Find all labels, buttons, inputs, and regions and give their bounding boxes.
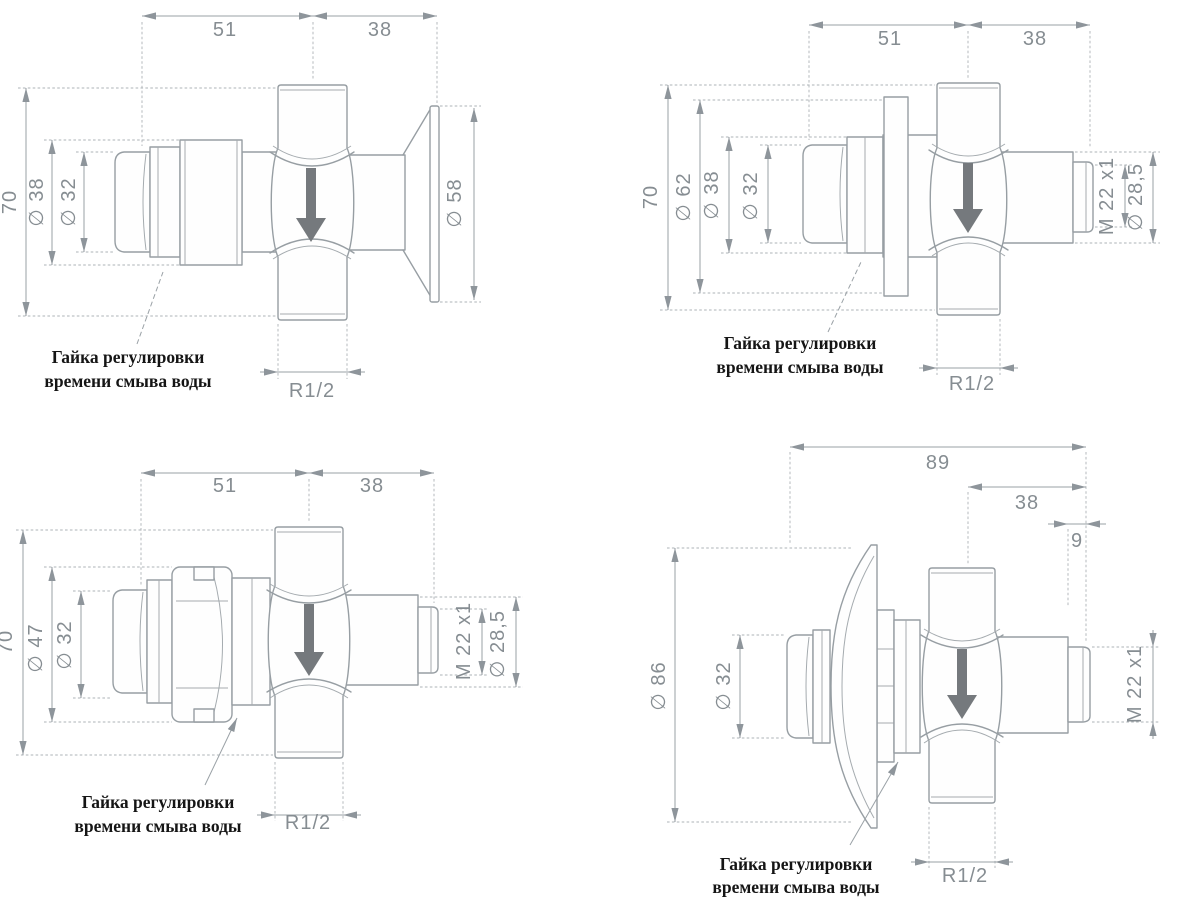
dome-escutcheon xyxy=(831,545,877,828)
threaded-outlet xyxy=(1068,647,1090,722)
thread-label-r12: R1/2 xyxy=(949,373,995,395)
technical-drawing-sheet: 51 38 70 ∅ 38 ∅ 32 ∅ 58 R1/2 Гайка регул… xyxy=(0,0,1200,910)
note-line1: Гайка регулировки xyxy=(720,854,873,874)
dim-label-9: 9 xyxy=(1071,530,1083,552)
dim-label-89: 89 xyxy=(926,452,950,474)
dim-label-51: 51 xyxy=(878,28,902,50)
threaded-outlet xyxy=(1073,162,1093,232)
thread-label-m22: M 22 x1 xyxy=(453,602,475,680)
dim-label-38: 38 xyxy=(368,19,392,41)
dia-label-28-5: ∅ 28,5 xyxy=(1125,163,1147,231)
dim-label-51: 51 xyxy=(213,19,237,41)
valve-body xyxy=(113,527,438,758)
leader-line xyxy=(137,272,163,344)
dia-label-47: ∅ 47 xyxy=(25,623,47,672)
dia-label-28-5: ∅ 28,5 xyxy=(487,610,509,678)
push-button xyxy=(787,635,813,738)
note-line2: времени смыва воды xyxy=(712,877,880,897)
leader-line xyxy=(205,718,237,785)
dim-label-38: 38 xyxy=(1015,492,1039,514)
drawing-valve-hex-nut: 51 38 70 ∅ 47 ∅ 32 M 22 x1 ∅ 28,5 R1/2 Г… xyxy=(0,473,523,836)
dia-label-32: ∅ 32 xyxy=(713,661,735,710)
plate-flange xyxy=(884,97,908,296)
dia-label-58: ∅ 58 xyxy=(444,178,466,227)
thread-label-r12: R1/2 xyxy=(285,812,331,834)
dia-label-32: ∅ 32 xyxy=(740,171,762,220)
leader-line xyxy=(828,262,861,332)
dim-label-51: 51 xyxy=(213,475,237,497)
valve-drawings-canvas: 51 38 70 ∅ 38 ∅ 32 ∅ 58 R1/2 Гайка регул… xyxy=(0,0,1200,910)
note-line1: Гайка регулировки xyxy=(82,792,235,812)
note-line2: времени смыва воды xyxy=(716,357,884,377)
thread-label-r12: R1/2 xyxy=(289,380,335,402)
drawing-valve-wall-flange: 51 38 70 ∅ 38 ∅ 32 ∅ 58 R1/2 Гайка регул… xyxy=(0,16,481,402)
note-line2: времени смыва воды xyxy=(74,816,242,836)
dim-label-70: 70 xyxy=(0,190,21,214)
dia-label-62: ∅ 62 xyxy=(673,172,695,221)
adjusting-nut xyxy=(180,140,242,265)
valve-body xyxy=(787,545,1090,828)
dim-label-70: 70 xyxy=(0,630,17,654)
thread-label-m22: M 22 x1 xyxy=(1096,157,1118,235)
valve-body xyxy=(115,85,439,320)
dia-label-38: ∅ 38 xyxy=(26,177,48,226)
note-line1: Гайка регулировки xyxy=(724,333,877,353)
drawing-valve-plate-flange: 51 38 70 ∅ 62 ∅ 38 ∅ 32 M 22 x1 ∅ 28,5 R… xyxy=(640,25,1160,395)
wall-flange-plate xyxy=(430,106,439,302)
note-line1: Гайка регулировки xyxy=(52,347,205,367)
dia-label-32: ∅ 32 xyxy=(54,620,76,669)
dim-label-38: 38 xyxy=(360,475,384,497)
valve-body xyxy=(803,83,1093,315)
dim-label-38: 38 xyxy=(1023,28,1047,50)
dia-label-86: ∅ 86 xyxy=(648,661,670,710)
dia-label-32: ∅ 32 xyxy=(58,177,80,226)
thread-label-m22: M 22 x1 xyxy=(1124,645,1146,723)
dim-label-70: 70 xyxy=(640,185,662,209)
drawing-valve-dome-flange: 89 38 9 ∅ 86 ∅ 32 M 22 x1 R1/2 Гайка рег… xyxy=(648,447,1160,897)
threaded-outlet xyxy=(418,607,438,673)
dia-label-38: ∅ 38 xyxy=(701,170,723,219)
note-line2: времени смыва воды xyxy=(44,371,212,391)
thread-label-r12: R1/2 xyxy=(942,865,988,887)
